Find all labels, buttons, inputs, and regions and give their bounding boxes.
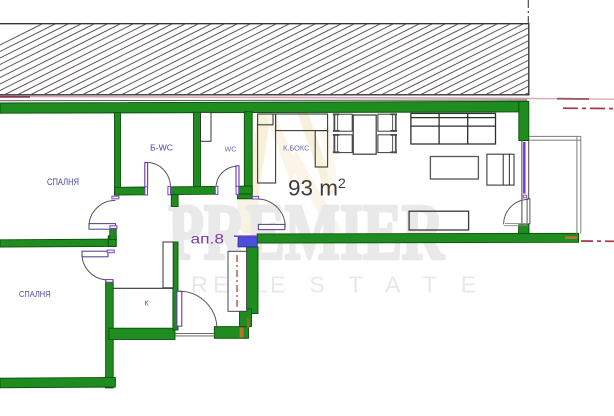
svg-text:К: К [145,301,150,308]
svg-text:ESTATE: ESTATE [270,272,500,298]
svg-text:WC: WC [225,147,237,154]
svg-text:СПАЛНЯ: СПАЛНЯ [47,177,79,188]
svg-text:Б-WC: Б-WC [150,142,173,152]
svg-text:93 m2: 93 m2 [288,175,346,201]
svg-text:К.БОКС: К.БОКС [283,143,310,152]
svg-text:СПАЛНЯ: СПАЛНЯ [19,290,51,299]
svg-text:ап.8: ап.8 [191,230,225,246]
